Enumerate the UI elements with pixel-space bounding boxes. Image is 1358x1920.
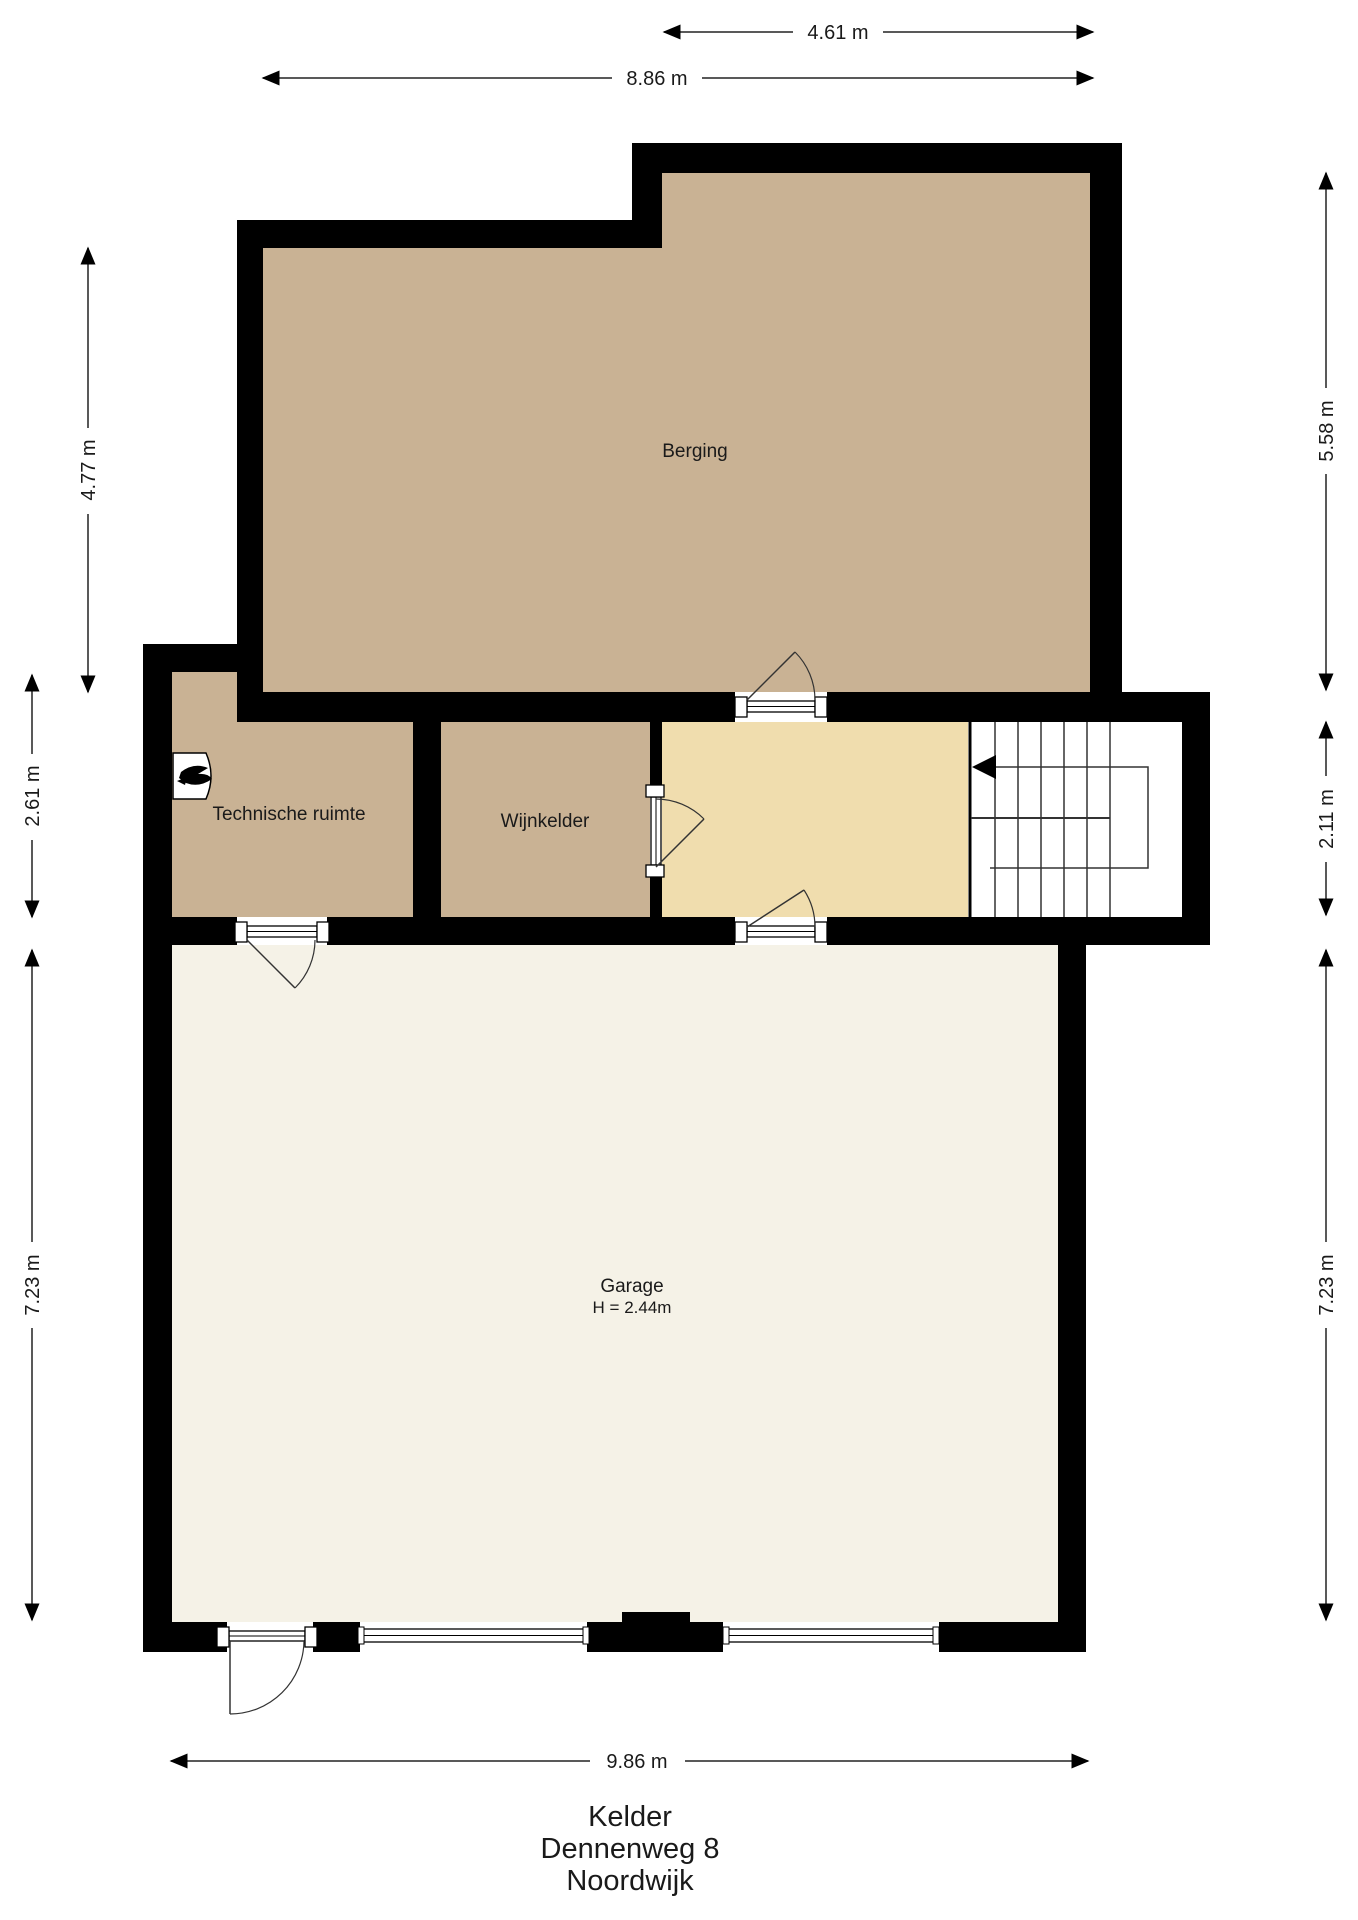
wall-middle-top-east [827,692,1210,722]
plan-title-city: Noordwijk [566,1865,694,1897]
room-floors [172,173,1182,1622]
wall-middle-top-west [263,692,735,722]
floor-plan: Berging Technische ruimte Wijnkelder Gar… [0,0,1358,1920]
wall-top-right [632,143,1122,173]
wall-left-outer [143,644,172,1652]
dim-top-partial: 4.61 m [807,22,868,44]
window-garage-right [723,1627,939,1644]
room-label-technische: Technische ruimte [212,804,365,825]
wall-wijnkelder-right-upper [650,722,662,795]
wall-garage-step [622,1612,690,1622]
wall-middle-bottom-west [143,917,237,945]
wall-middle-bottom-east [827,917,1210,945]
dim-left-middle: 2.61 m [22,765,44,826]
dim-top-full: 8.86 m [626,68,687,90]
dim-bottom: 9.86 m [606,1751,667,1773]
floor-plan-page: Berging Technische ruimte Wijnkelder Gar… [0,0,1358,1920]
title-block: Kelder Dennenweg 8 Noordwijk [541,1801,720,1897]
dim-right-middle: 2.11 m [1316,789,1338,849]
room-label-garage: Garage [600,1276,663,1297]
dim-left-upper: 4.77 m [78,439,100,500]
window-garage-left [358,1627,589,1644]
wall-garage-bottom-b [313,1622,360,1652]
room-berging-floor [263,173,1090,692]
plan-title-floor: Kelder [588,1801,672,1833]
room-label-wijnkelder: Wijnkelder [501,811,590,832]
plan-title-street: Dennenweg 8 [541,1833,720,1865]
wall-top-left [237,220,662,248]
dim-right-lower: 7.23 m [1316,1254,1338,1315]
wall-garage-bottom-c [587,1622,723,1652]
wall-garage-right [1058,945,1086,1652]
boiler-icon [173,753,212,799]
wall-berging-right [1090,143,1122,722]
stairwell-floor [971,722,1182,917]
room-label-garage-height: H = 2.44m [593,1298,672,1317]
wall-technische-right [413,692,441,917]
dim-left-lower: 7.23 m [22,1254,44,1315]
room-label-berging: Berging [662,441,728,462]
wall-stair-right [1182,692,1210,945]
dim-right-upper: 5.58 m [1316,400,1338,461]
door-garage-exterior [217,1622,317,1714]
hall-floor [662,722,968,917]
wall-garage-bottom-a [143,1622,227,1652]
wall-garage-bottom-d [939,1622,1086,1652]
wall-middle-bottom-center [327,917,735,945]
